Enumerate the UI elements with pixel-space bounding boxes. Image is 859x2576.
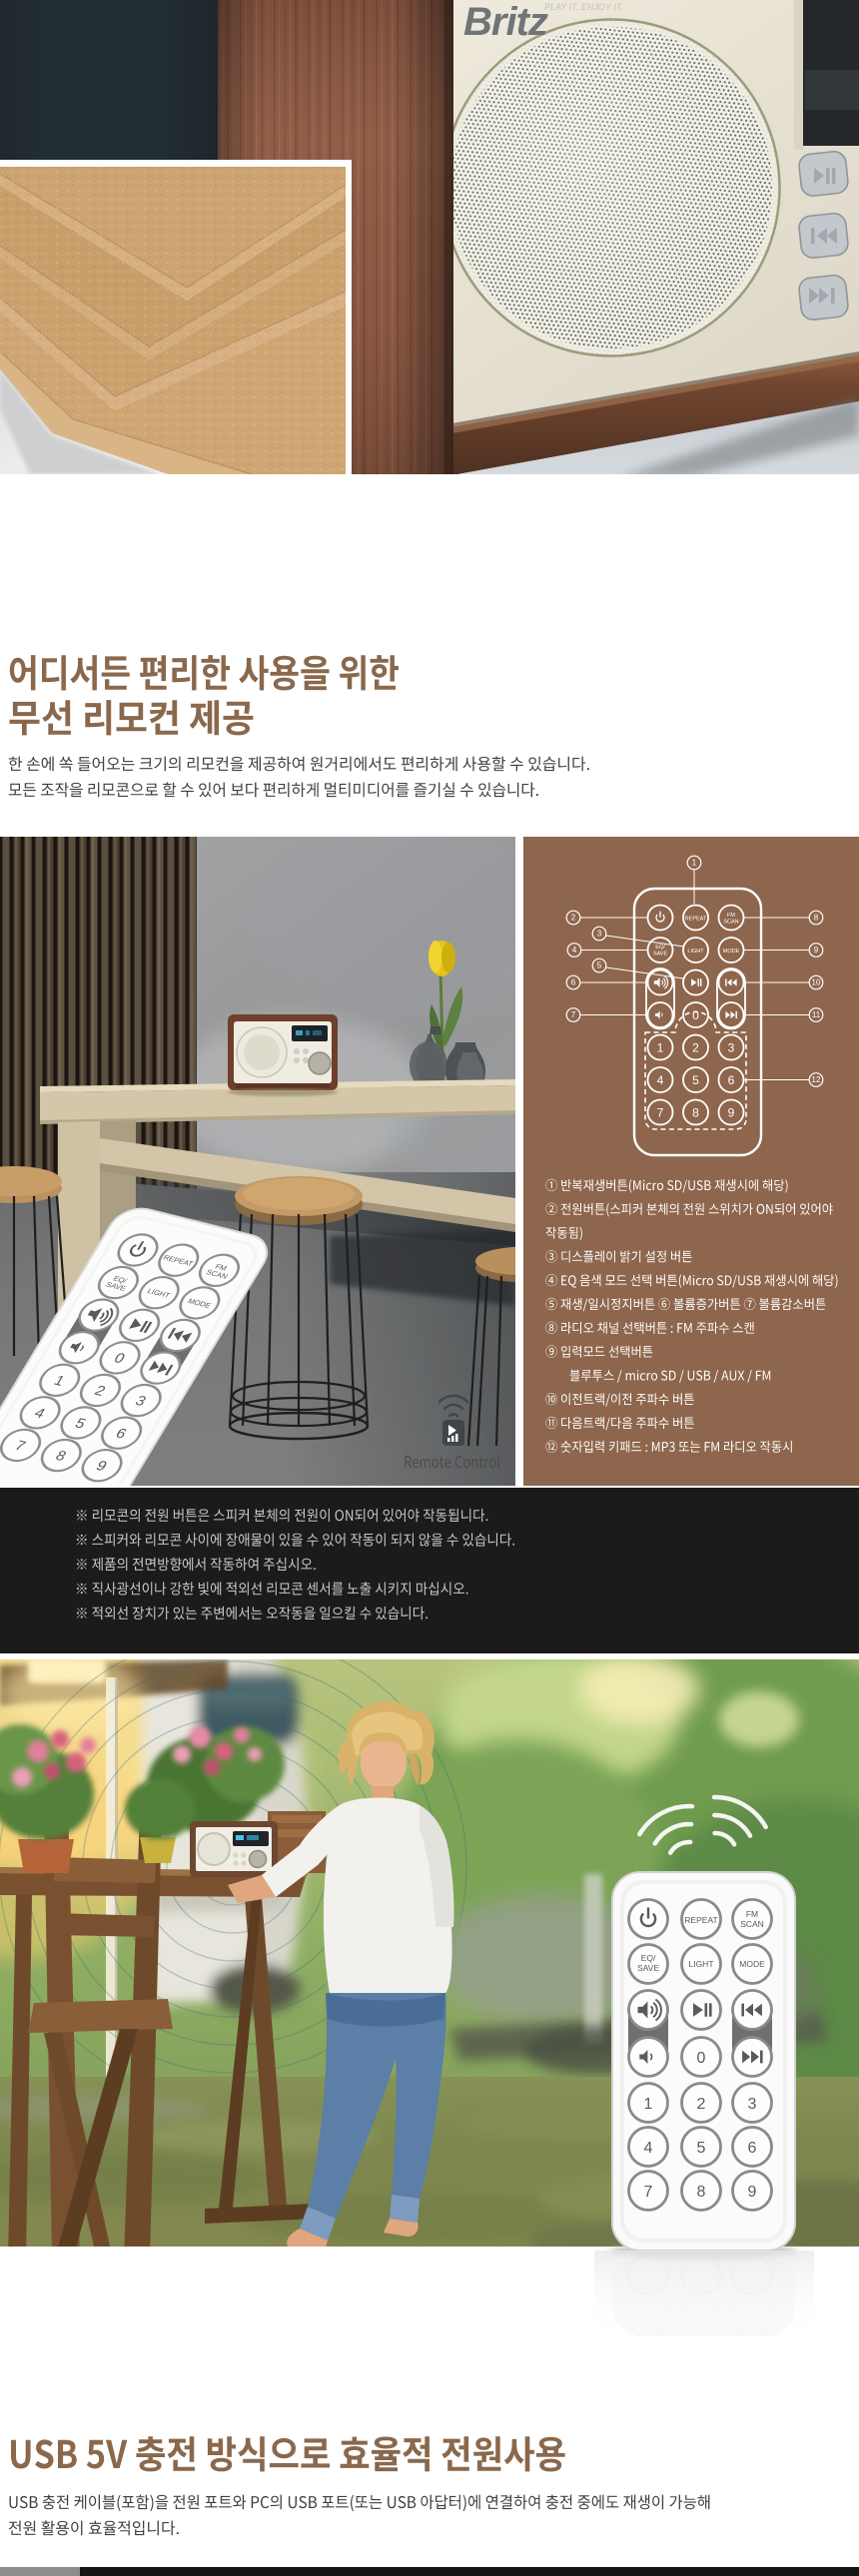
svg-text:6: 6 bbox=[748, 2140, 757, 2157]
svg-text:9: 9 bbox=[814, 946, 819, 955]
svg-text:3: 3 bbox=[728, 1041, 735, 1055]
svg-text:SCAN: SCAN bbox=[723, 920, 738, 926]
svg-text:9: 9 bbox=[728, 1106, 735, 1120]
svg-text:10: 10 bbox=[812, 978, 821, 987]
svg-text:4: 4 bbox=[657, 1073, 664, 1087]
svg-text:3: 3 bbox=[597, 930, 602, 939]
svg-text:EQ/: EQ/ bbox=[641, 1953, 656, 1963]
svg-text:8: 8 bbox=[692, 1106, 699, 1120]
svg-text:0: 0 bbox=[692, 1008, 699, 1022]
svg-text:11: 11 bbox=[812, 1010, 821, 1019]
svg-text:4: 4 bbox=[644, 2140, 653, 2157]
svg-text:Britz: Britz bbox=[463, 0, 548, 44]
svg-text:7: 7 bbox=[657, 1106, 664, 1120]
svg-text:8: 8 bbox=[697, 2184, 706, 2201]
svg-text:PLAY IT. ENJOY IT.: PLAY IT. ENJOY IT. bbox=[544, 2, 623, 12]
svg-text:SAVE: SAVE bbox=[653, 952, 668, 958]
svg-text:6: 6 bbox=[728, 1073, 735, 1087]
svg-text:8: 8 bbox=[814, 914, 819, 923]
svg-text:SAVE: SAVE bbox=[637, 1963, 659, 1973]
svg-text:2: 2 bbox=[571, 914, 576, 923]
svg-text:REPEAT: REPEAT bbox=[685, 917, 707, 923]
svg-text:EQ/: EQ/ bbox=[655, 945, 665, 951]
svg-text:9: 9 bbox=[748, 2184, 757, 2201]
svg-text:MODE: MODE bbox=[723, 949, 740, 955]
svg-text:5: 5 bbox=[697, 2140, 706, 2157]
svg-text:MODE: MODE bbox=[739, 1959, 765, 1969]
svg-text:FM: FM bbox=[746, 1909, 758, 1919]
svg-text:REPEAT: REPEAT bbox=[684, 1915, 717, 1925]
svg-text:SCAN: SCAN bbox=[740, 1919, 764, 1929]
svg-text:7: 7 bbox=[571, 1010, 576, 1019]
svg-text:3: 3 bbox=[748, 2096, 757, 2113]
svg-text:LIGHT: LIGHT bbox=[687, 949, 704, 955]
svg-text:1: 1 bbox=[644, 2096, 653, 2113]
svg-text:1: 1 bbox=[692, 859, 697, 868]
svg-text:4: 4 bbox=[572, 946, 577, 955]
svg-text:12: 12 bbox=[812, 1075, 821, 1084]
svg-text:5: 5 bbox=[692, 1073, 699, 1087]
svg-text:7: 7 bbox=[644, 2184, 653, 2201]
svg-text:2: 2 bbox=[692, 1041, 699, 1055]
svg-text:6: 6 bbox=[571, 978, 576, 987]
svg-text:0: 0 bbox=[697, 2050, 706, 2067]
svg-text:LIGHT: LIGHT bbox=[688, 1959, 713, 1969]
svg-text:2: 2 bbox=[697, 2096, 706, 2113]
svg-text:FM: FM bbox=[727, 913, 735, 919]
svg-text:5: 5 bbox=[597, 962, 602, 970]
svg-text:1: 1 bbox=[657, 1041, 664, 1055]
